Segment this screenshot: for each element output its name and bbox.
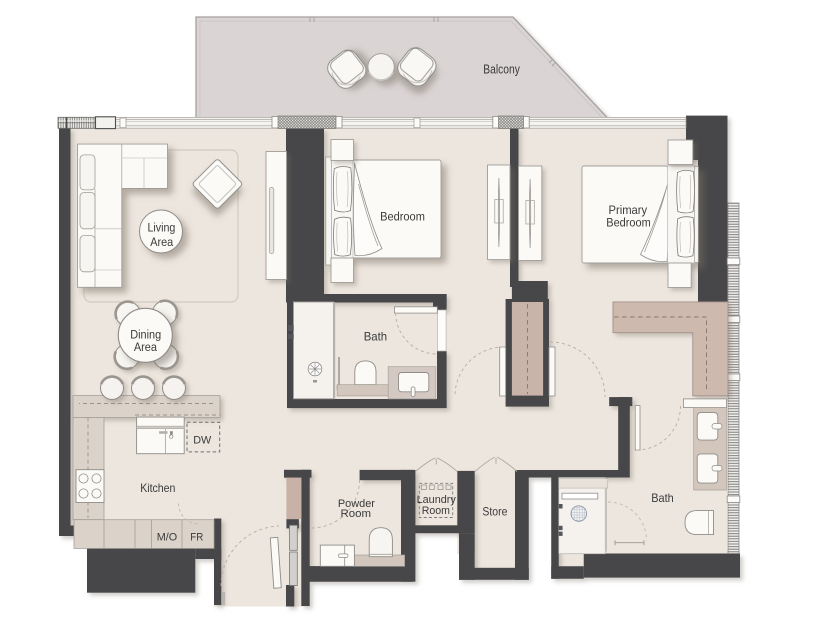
svg-text:M/O: M/O — [157, 532, 177, 544]
svg-text:Balcony: Balcony — [483, 62, 520, 76]
svg-text:Area: Area — [134, 340, 157, 354]
svg-text:Room: Room — [422, 505, 450, 517]
svg-text:Room: Room — [341, 508, 372, 520]
svg-text:Bath: Bath — [651, 491, 674, 505]
svg-text:Area: Area — [150, 235, 173, 249]
svg-text:Bath: Bath — [364, 330, 387, 344]
svg-text:Kitchen: Kitchen — [140, 482, 175, 495]
svg-text:Store: Store — [482, 505, 507, 519]
svg-text:Living: Living — [147, 221, 175, 235]
svg-text:DW: DW — [193, 435, 212, 447]
svg-text:FR: FR — [190, 532, 203, 544]
svg-text:Bedroom: Bedroom — [380, 209, 425, 223]
svg-text:Bedroom: Bedroom — [606, 215, 650, 229]
